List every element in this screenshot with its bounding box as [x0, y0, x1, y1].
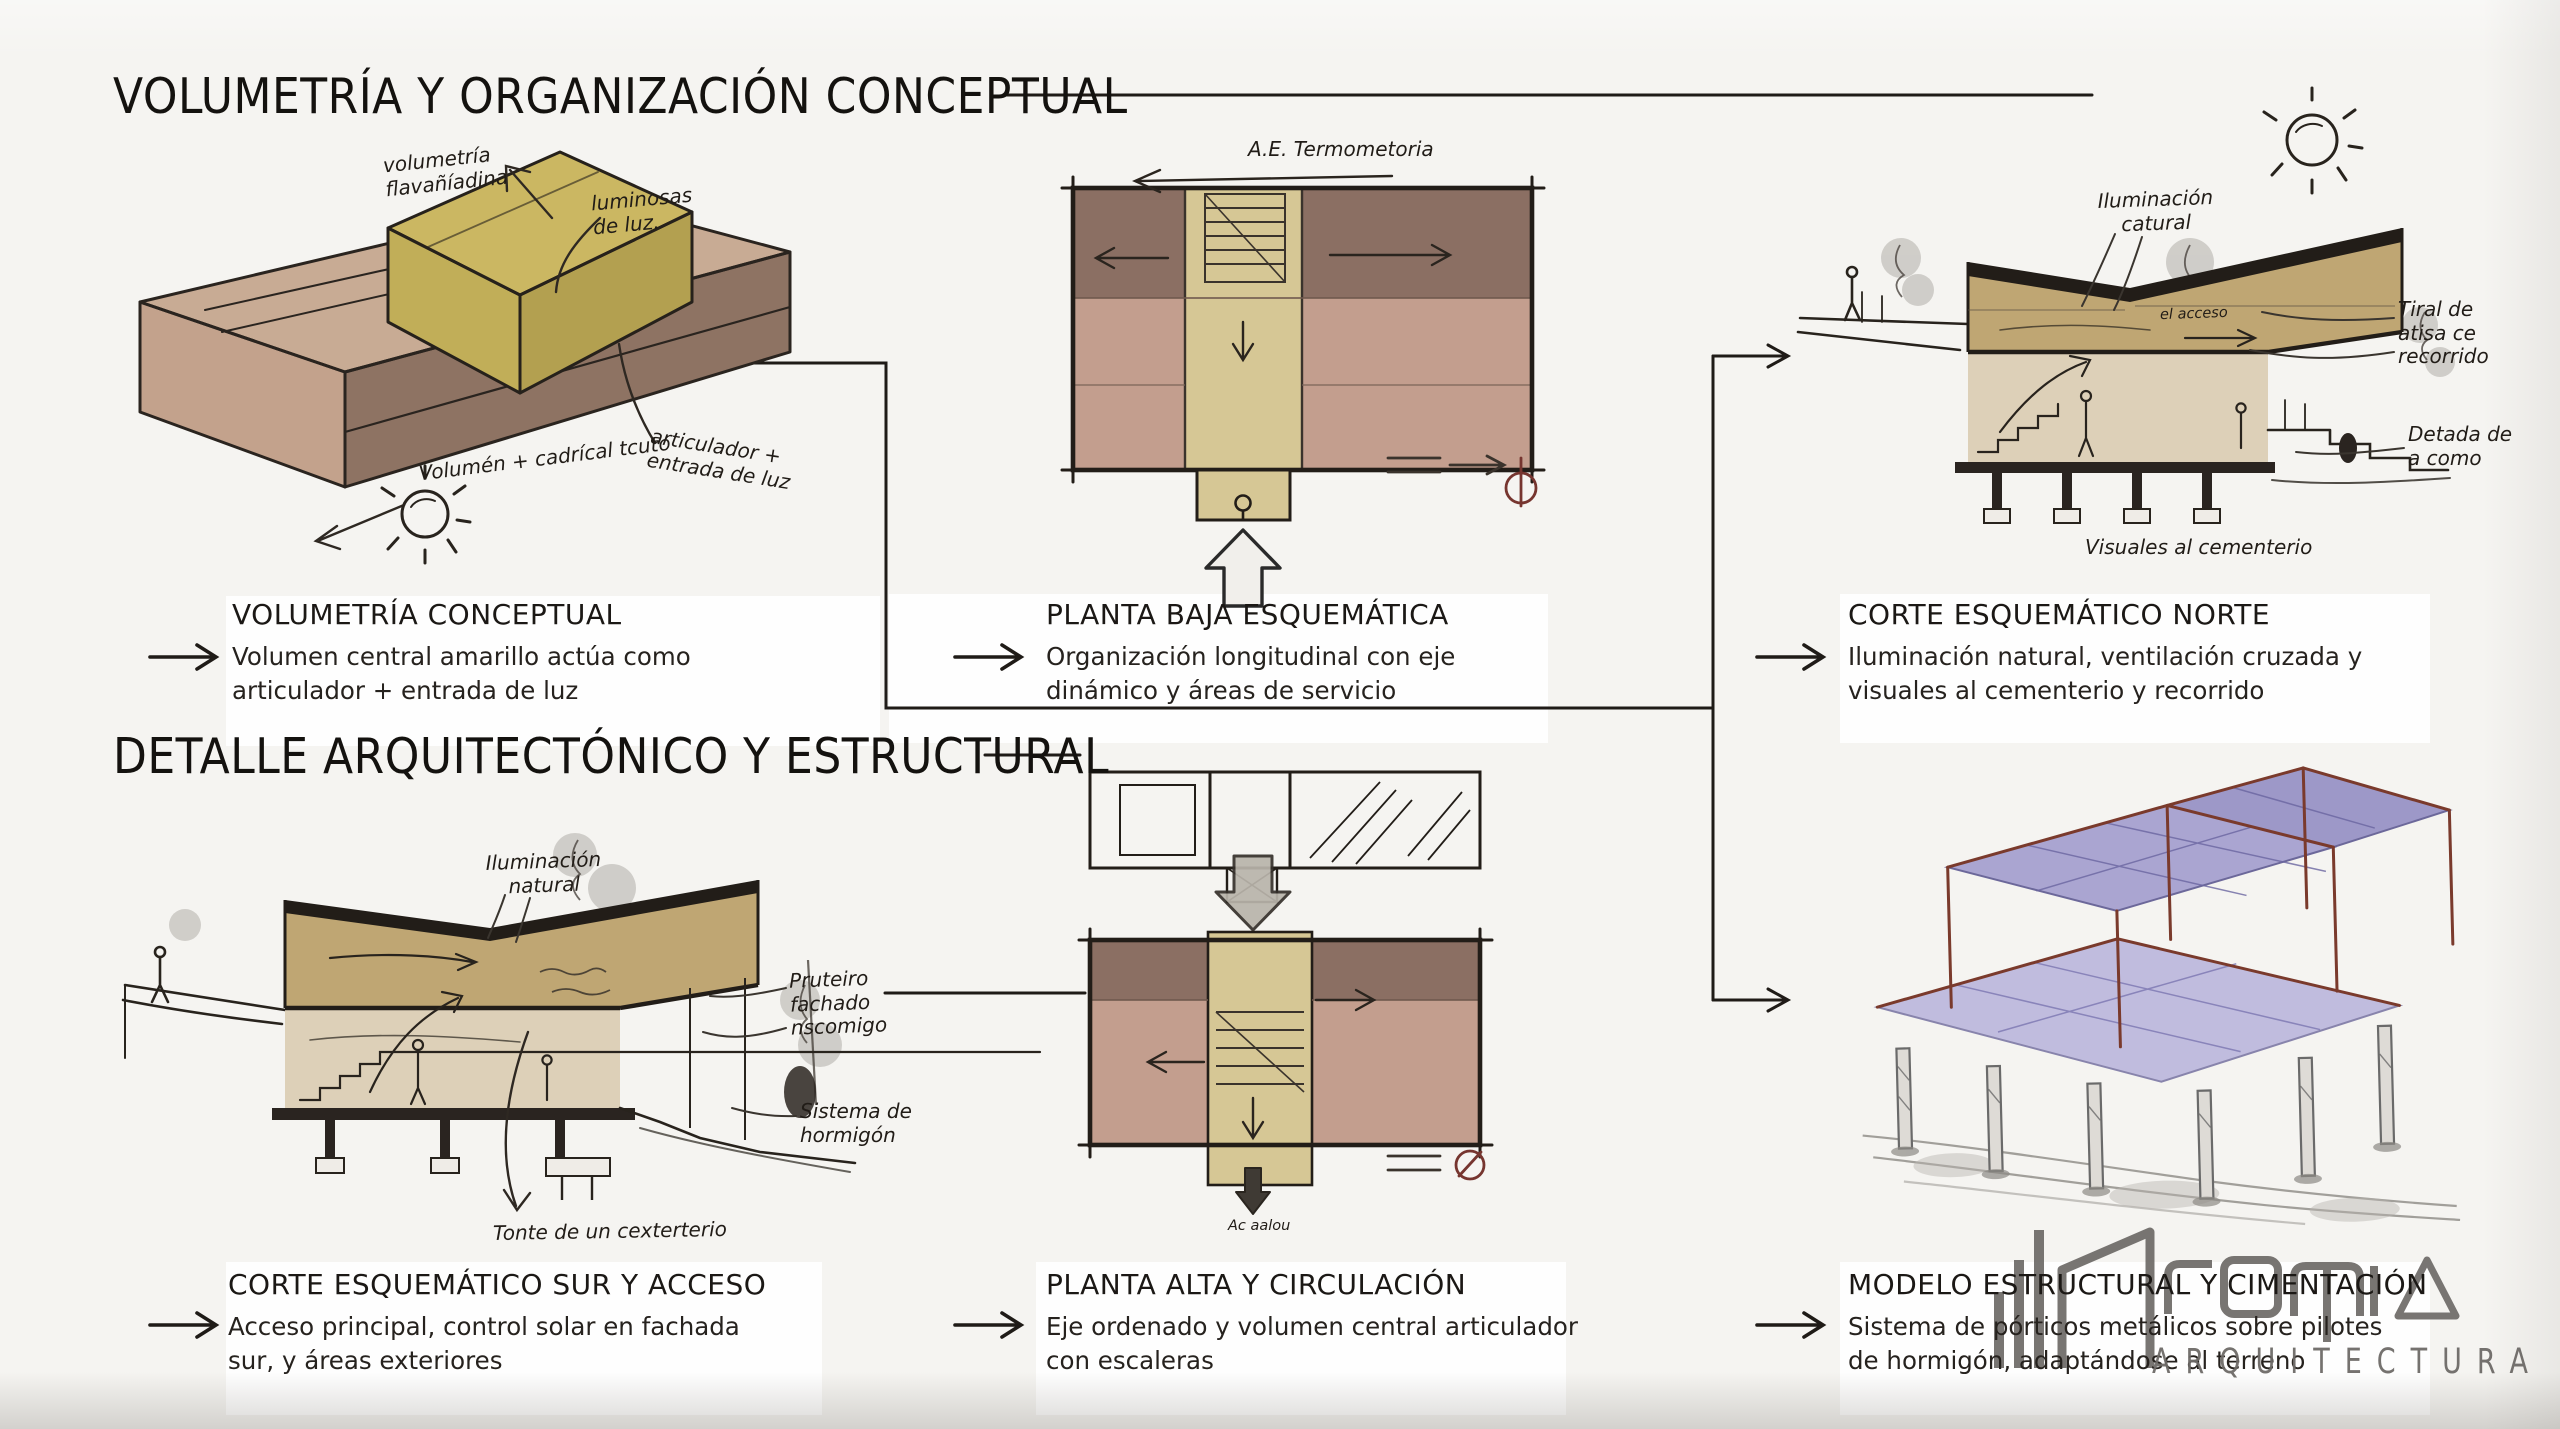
caption-line: Iluminación natural, ventilación cruzada… [1848, 640, 2468, 674]
scribble-text [540, 968, 610, 994]
caption-line: articulador + entrada de luz [232, 674, 852, 708]
caption-title: CORTE ESQUEMÁTICO SUR Y ACCESO [228, 1268, 848, 1301]
caption-title: MODELO ESTRUCTURAL Y CIMENTACIÓN [1848, 1268, 2468, 1301]
caption-line: Volumen central amarillo actúa como [232, 640, 852, 674]
annotation-sistema-hormigon: Sistema de hormigón [800, 1100, 912, 1147]
annotation-visuales: Visuales al cementerio [2085, 536, 2312, 560]
annotation-tonte: Tonte de un cexterterio [493, 1218, 727, 1246]
annotation-acceso: el acceso [2160, 305, 2228, 324]
section-title-volumetria: VOLUMETRÍA Y ORGANIZACIÓN CONCEPTUAL [113, 68, 1128, 125]
sketch-modelo-estructural [1853, 764, 2460, 1235]
logo-wordmark: ARQUITECTURA [2152, 1342, 2543, 1382]
caption-title: PLANTA ALTA Y CIRCULACIÓN [1046, 1268, 1666, 1301]
annotation-volumetria: volumetría flavañíadina [382, 142, 509, 202]
sketch-planta-baja [1062, 170, 1544, 606]
caption-line: Sistema de pórticos metálicos sobre pilo… [1848, 1310, 2468, 1344]
caption-line: Eje ordenado y volumen central articulad… [1046, 1310, 1666, 1344]
concept-board: VOLUMETRÍA Y ORGANIZACIÓN CONCEPTUAL DET… [0, 0, 2560, 1429]
annotation-termometoria: A.E. Termometoria [1248, 138, 1434, 162]
caption-line: dinámico y áreas de servicio [1046, 674, 1666, 708]
caption-planta-alta: PLANTA ALTA Y CIRCULACIÓN Eje ordenado y… [1046, 1268, 1666, 1378]
annotation-fachada: Pruteiro fachado nscomigo [789, 966, 888, 1040]
caption-title: VOLUMETRÍA CONCEPTUAL [232, 598, 852, 631]
sketch-corte-norte [1798, 88, 2455, 523]
caption-line: sur, y áreas exteriores [228, 1344, 848, 1378]
compass-icon [1388, 1151, 1484, 1179]
sketch-planta-alta [1079, 772, 1492, 1214]
annotation-ac-aalou: Ac aalou [1228, 1218, 1290, 1235]
caption-line: con escaleras [1046, 1344, 1666, 1378]
section-title-detalle: DETALLE ARQUITECTÓNICO Y ESTRUCTURAL [113, 728, 1109, 785]
caption-corte-norte: CORTE ESQUEMÁTICO NORTE Iluminación natu… [1848, 598, 2468, 708]
caption-planta-baja: PLANTA BAJA ESQUEMÁTICA Organización lon… [1046, 598, 1666, 708]
annotation-luminosas: luminosas de luz. [590, 184, 695, 240]
caption-line: visuales al cementerio y recorrido [1848, 674, 2468, 708]
annotation-tiral: Tiral de atisa ce recorrido [2398, 298, 2489, 369]
annotation-detada: Detada de a como [2408, 423, 2512, 470]
sun-icon [2264, 88, 2362, 193]
connector-lines [575, 95, 2092, 1011]
annotation-articulador: articulador + entrada de luz [645, 425, 795, 494]
annotation-volumen: Volumén + cadrícal tcuto [418, 432, 672, 486]
annotation-iluminacion-norte: Iluminación catural [2097, 186, 2214, 237]
caption-title: PLANTA BAJA ESQUEMÁTICA [1046, 598, 1666, 631]
caption-line: Acceso principal, control solar en facha… [228, 1310, 848, 1344]
caption-title: CORTE ESQUEMÁTICO NORTE [1848, 598, 2468, 631]
caption-corte-sur: CORTE ESQUEMÁTICO SUR Y ACCESO Acceso pr… [228, 1268, 848, 1378]
caption-volumetria-conceptual: VOLUMETRÍA CONCEPTUAL Volumen central am… [232, 598, 852, 708]
caption-line: Organización longitudinal con eje [1046, 640, 1666, 674]
compass-icon [1388, 456, 1536, 506]
annotation-iluminacion-sur: Iluminación natural [485, 848, 602, 899]
